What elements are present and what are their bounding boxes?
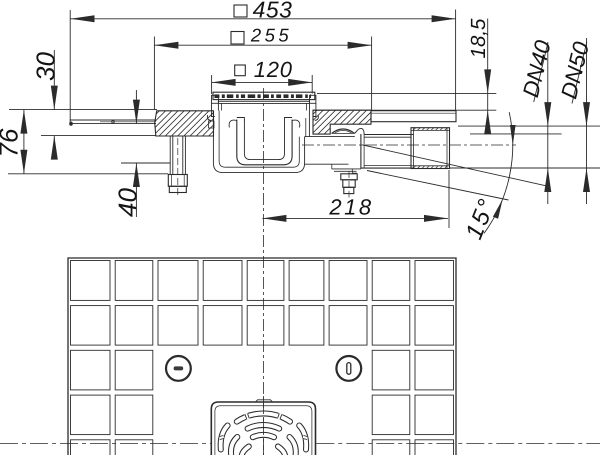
svg-text:120: 120	[254, 57, 293, 82]
svg-text:40: 40	[112, 188, 142, 217]
svg-text:18,5: 18,5	[467, 18, 490, 58]
svg-text:30: 30	[31, 52, 61, 81]
svg-text:453: 453	[253, 0, 293, 23]
svg-text:76: 76	[0, 128, 24, 157]
svg-text:218: 218	[328, 194, 373, 219]
svg-text:255: 255	[250, 25, 292, 46]
